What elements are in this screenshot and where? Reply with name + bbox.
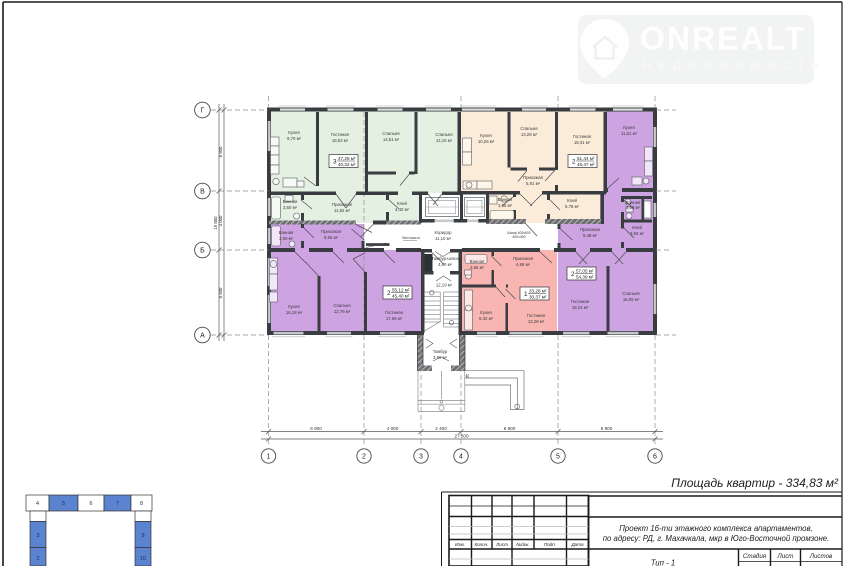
svg-text:9,32 м²: 9,32 м² — [479, 316, 494, 321]
svg-text:3,85 м²: 3,85 м² — [498, 203, 513, 208]
svg-text:Вентшахта: Вентшахта — [402, 236, 419, 240]
svg-text:Лист: Лист — [495, 542, 508, 547]
svg-text:11,10 м²: 11,10 м² — [435, 236, 452, 241]
svg-text:6 900: 6 900 — [310, 426, 322, 431]
svg-text:13,28 м²: 13,28 м² — [521, 132, 538, 137]
svg-text:Ванная: Ванная — [470, 259, 485, 264]
svg-text:Гостиная: Гостиная — [527, 313, 546, 318]
svg-text:18,24 м²: 18,24 м² — [572, 305, 589, 310]
svg-text:10,26 м²: 10,26 м² — [478, 139, 495, 144]
svg-text:13,28 м²: 13,28 м² — [528, 319, 545, 324]
svg-text:14,16 м²: 14,16 м² — [436, 138, 453, 143]
svg-text:Прихожая: Прихожая — [332, 202, 353, 207]
svg-text:2: 2 — [571, 271, 575, 278]
svg-text:9,70 м²: 9,70 м² — [287, 136, 302, 141]
svg-text:1: 1 — [524, 291, 528, 298]
svg-text:Ванная: Ванная — [498, 197, 513, 202]
svg-text:2: 2 — [572, 159, 576, 166]
svg-text:Клей: Клей — [567, 198, 577, 203]
svg-text:5: 5 — [62, 501, 65, 507]
svg-text:3,93 м²: 3,93 м² — [630, 231, 645, 236]
svg-text:48,47 м²: 48,47 м² — [577, 162, 595, 167]
svg-text:Кухня: Кухня — [480, 310, 492, 315]
svg-text:Стадия: Стадия — [743, 553, 767, 560]
svg-text:Гостиная: Гостиная — [385, 310, 404, 315]
svg-text:45,40 м²: 45,40 м² — [392, 294, 410, 299]
svg-text:17,66 м²: 17,66 м² — [386, 316, 403, 321]
svg-text:А: А — [200, 333, 205, 340]
svg-text:3: 3 — [419, 454, 423, 461]
svg-text:Подп.: Подп. — [544, 542, 556, 547]
svg-text:19 800: 19 800 — [213, 216, 218, 230]
svg-text:16,18 м²: 16,18 м² — [286, 310, 303, 315]
svg-text:18,53 м²: 18,53 м² — [332, 138, 349, 143]
svg-text:Прихожая: Прихожая — [321, 229, 342, 234]
svg-text:11,61 м²: 11,61 м² — [621, 131, 638, 136]
svg-text:3,60 м²: 3,60 м² — [283, 205, 298, 210]
svg-text:33,28 м²: 33,28 м² — [529, 289, 547, 294]
svg-text:4: 4 — [36, 501, 39, 507]
svg-text:12,19 м²: 12,19 м² — [436, 283, 453, 288]
svg-text:Тамбур-шлюз: Тамбур-шлюз — [431, 256, 458, 261]
svg-text:Изм.: Изм. — [455, 542, 465, 547]
svg-text:Проект 16-ти этажного комплекс: Проект 16-ти этажного комплекса апартаме… — [619, 524, 812, 533]
svg-text:Спальня: Спальня — [622, 291, 640, 296]
svg-text:16,05 м²: 16,05 м² — [623, 297, 640, 302]
svg-text:Спальня: Спальня — [520, 126, 538, 131]
svg-text:8 900: 8 900 — [218, 287, 223, 298]
svg-text:Колич.: Колич. — [475, 542, 489, 547]
svg-text:600х400: 600х400 — [512, 235, 525, 239]
svg-text:Гостиная: Гостиная — [571, 299, 590, 304]
svg-text:4: 4 — [459, 454, 463, 461]
svg-text:Лист: Лист — [777, 553, 794, 560]
svg-text:7: 7 — [116, 501, 119, 507]
svg-text:40,32 м²: 40,32 м² — [338, 162, 356, 167]
svg-text:Прихожая: Прихожая — [523, 175, 544, 180]
svg-text:Ванная: Ванная — [279, 230, 294, 235]
svg-text:2: 2 — [387, 290, 391, 297]
svg-text:Ванная: Ванная — [283, 199, 298, 204]
svg-text:Кухня: Кухня — [288, 304, 300, 309]
svg-text:8: 8 — [140, 501, 143, 507]
svg-text:1: 1 — [267, 454, 271, 461]
svg-text:2 400: 2 400 — [435, 426, 447, 431]
svg-text:Прихожая: Прихожая — [513, 256, 534, 261]
svg-text:3: 3 — [36, 533, 39, 539]
svg-text:Г: Г — [201, 108, 205, 115]
svg-text:В: В — [200, 189, 205, 196]
svg-text:55,12 м²: 55,12 м² — [392, 288, 410, 293]
svg-text:54,39 м²: 54,39 м² — [576, 275, 594, 280]
svg-text:4,40 м²: 4,40 м² — [395, 207, 410, 212]
svg-text:51,44 м²: 51,44 м² — [577, 156, 595, 161]
svg-text:6 900: 6 900 — [601, 426, 613, 431]
svg-text:Кухня: Кухня — [480, 133, 492, 138]
svg-text:2: 2 — [362, 454, 366, 461]
svg-text:8 900: 8 900 — [218, 146, 223, 157]
svg-text:47,28 м²: 47,28 м² — [338, 156, 356, 161]
svg-text:4 000: 4 000 — [387, 426, 399, 431]
svg-text:Клей: Клей — [632, 225, 642, 230]
svg-text:5,78 м²: 5,78 м² — [565, 204, 580, 209]
svg-text:6: 6 — [89, 501, 92, 507]
svg-text:Гостиная: Гостиная — [331, 132, 350, 137]
svg-text:ONREALT: ONREALT — [640, 21, 806, 57]
svg-text:№док.: №док. — [516, 542, 530, 547]
svg-text:Дата: Дата — [570, 542, 584, 547]
svg-text:НЕДВИЖИМОСТЬ: НЕДВИЖИМОСТЬ — [643, 60, 826, 72]
svg-text:Кухня: Кухня — [288, 130, 300, 135]
svg-text:57,05 м²: 57,05 м² — [576, 269, 594, 274]
svg-text:Тип - 1: Тип - 1 — [651, 559, 675, 566]
svg-text:Кухня: Кухня — [623, 125, 635, 130]
svg-text:8,56 м²: 8,56 м² — [324, 235, 339, 240]
svg-text:Спальня: Спальня — [435, 132, 453, 137]
svg-text:по адресу: РД, г. Махачкала, м: по адресу: РД, г. Махачкала, мкр в Юго-В… — [603, 534, 830, 543]
svg-text:Прихожая: Прихожая — [580, 227, 601, 232]
svg-text:4,69 м²: 4,69 м² — [516, 262, 531, 267]
svg-text:4,90 м²: 4,90 м² — [438, 262, 453, 267]
svg-text:Коридор: Коридор — [435, 230, 453, 235]
svg-text:10: 10 — [140, 556, 146, 562]
svg-text:Гостиная: Гостиная — [573, 134, 592, 139]
svg-text:6: 6 — [653, 454, 657, 461]
svg-text:2: 2 — [36, 556, 39, 562]
svg-text:Б: Б — [200, 248, 205, 255]
svg-text:18,31 м²: 18,31 м² — [574, 140, 591, 145]
svg-text:6 900: 6 900 — [504, 426, 516, 431]
svg-text:Площадь квартир - 334,83 м²: Площадь квартир - 334,83 м² — [671, 476, 839, 490]
svg-text:12,76 м²: 12,76 м² — [334, 309, 351, 314]
svg-text:27 500: 27 500 — [454, 434, 468, 439]
svg-text:14,51 м²: 14,51 м² — [383, 137, 400, 142]
svg-text:3,90 м²: 3,90 м² — [433, 355, 448, 360]
svg-text:9: 9 — [141, 533, 144, 539]
svg-text:Спальня: Спальня — [382, 131, 400, 136]
svg-text:4 000: 4 000 — [218, 215, 223, 226]
svg-text:Клей: Клей — [397, 201, 407, 206]
svg-text:9,48 м²: 9,48 м² — [583, 233, 598, 238]
svg-text:3: 3 — [333, 159, 337, 166]
svg-text:Тамбур: Тамбур — [433, 349, 448, 354]
svg-text:5,81 м²: 5,81 м² — [526, 181, 541, 186]
svg-text:30,37 м²: 30,37 м² — [529, 295, 547, 300]
svg-text:Спальня: Спальня — [333, 303, 351, 308]
svg-text:11,92 м²: 11,92 м² — [334, 208, 351, 213]
svg-text:Листов: Листов — [809, 553, 833, 560]
svg-text:5: 5 — [556, 454, 560, 461]
svg-text:3,60 м²: 3,60 м² — [279, 236, 294, 241]
svg-text:3,53 м²: 3,53 м² — [626, 205, 641, 210]
svg-text:К: К — [466, 374, 470, 380]
svg-text:3,56 м²: 3,56 м² — [470, 265, 485, 270]
